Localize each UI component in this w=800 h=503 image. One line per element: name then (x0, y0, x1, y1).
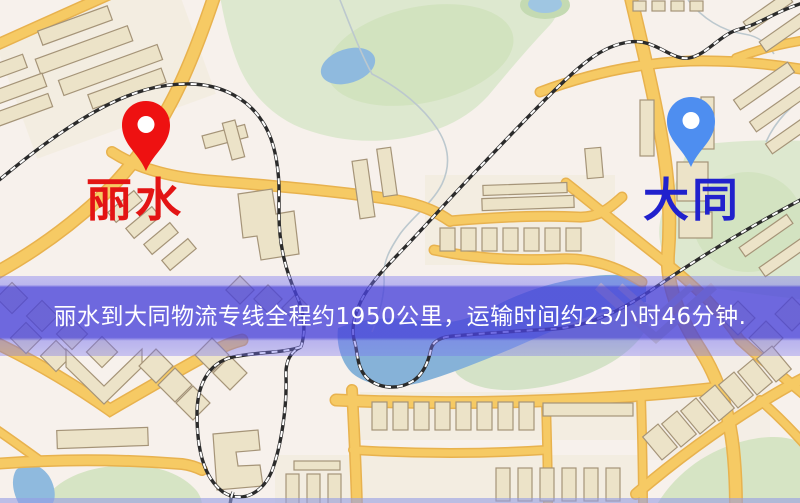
destination-pin-hole (683, 112, 700, 129)
route-info-text: 丽水到大同物流专线全程约1950公里，运输时间约23小时46分钟. (0, 288, 800, 340)
origin-label: 丽水 (86, 177, 184, 223)
route-info-banner: 丽水到大同物流专线全程约1950公里，运输时间约23小时46分钟. (0, 276, 800, 356)
map-canvas (0, 0, 800, 503)
destination-label: 大同 (643, 177, 741, 223)
bottom-edge-strip (0, 498, 800, 503)
map-view[interactable]: 丽水 大同 丽水到大同物流专线全程约1950公里，运输时间约23小时46分钟. (0, 0, 800, 503)
origin-pin-hole (138, 116, 155, 133)
